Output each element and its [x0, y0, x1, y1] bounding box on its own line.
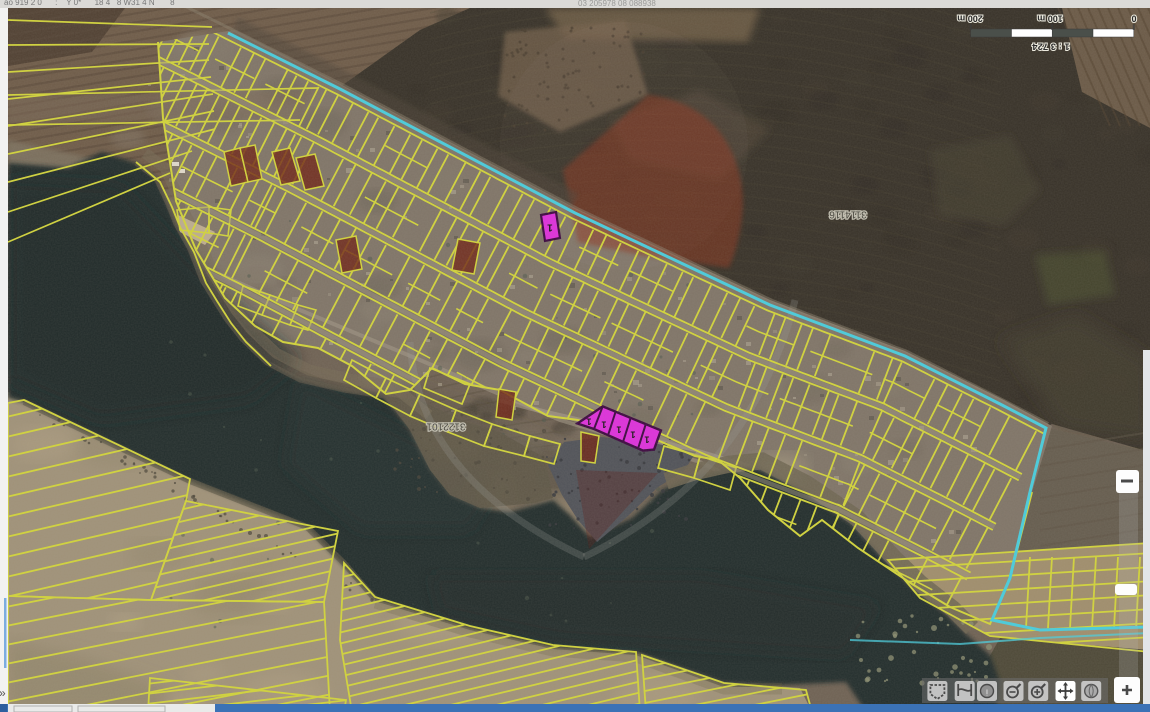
svg-text:»: »	[0, 686, 6, 700]
svg-text:i: i	[986, 687, 988, 696]
svg-text:0: 0	[1131, 14, 1136, 24]
svg-text:1 : 3 724: 1 : 3 724	[1032, 40, 1070, 51]
svg-text:03 205978 08 088938: 03 205978 08 088938	[578, 0, 656, 8]
svg-text:200 m: 200 m	[957, 14, 983, 24]
svg-text:ao 919 2 0 : Y 0*: ao 919 2 0 : Y 0* 18 4 8 W31 4 N 8	[4, 0, 175, 7]
svg-text:100 m: 100 m	[1037, 14, 1063, 24]
